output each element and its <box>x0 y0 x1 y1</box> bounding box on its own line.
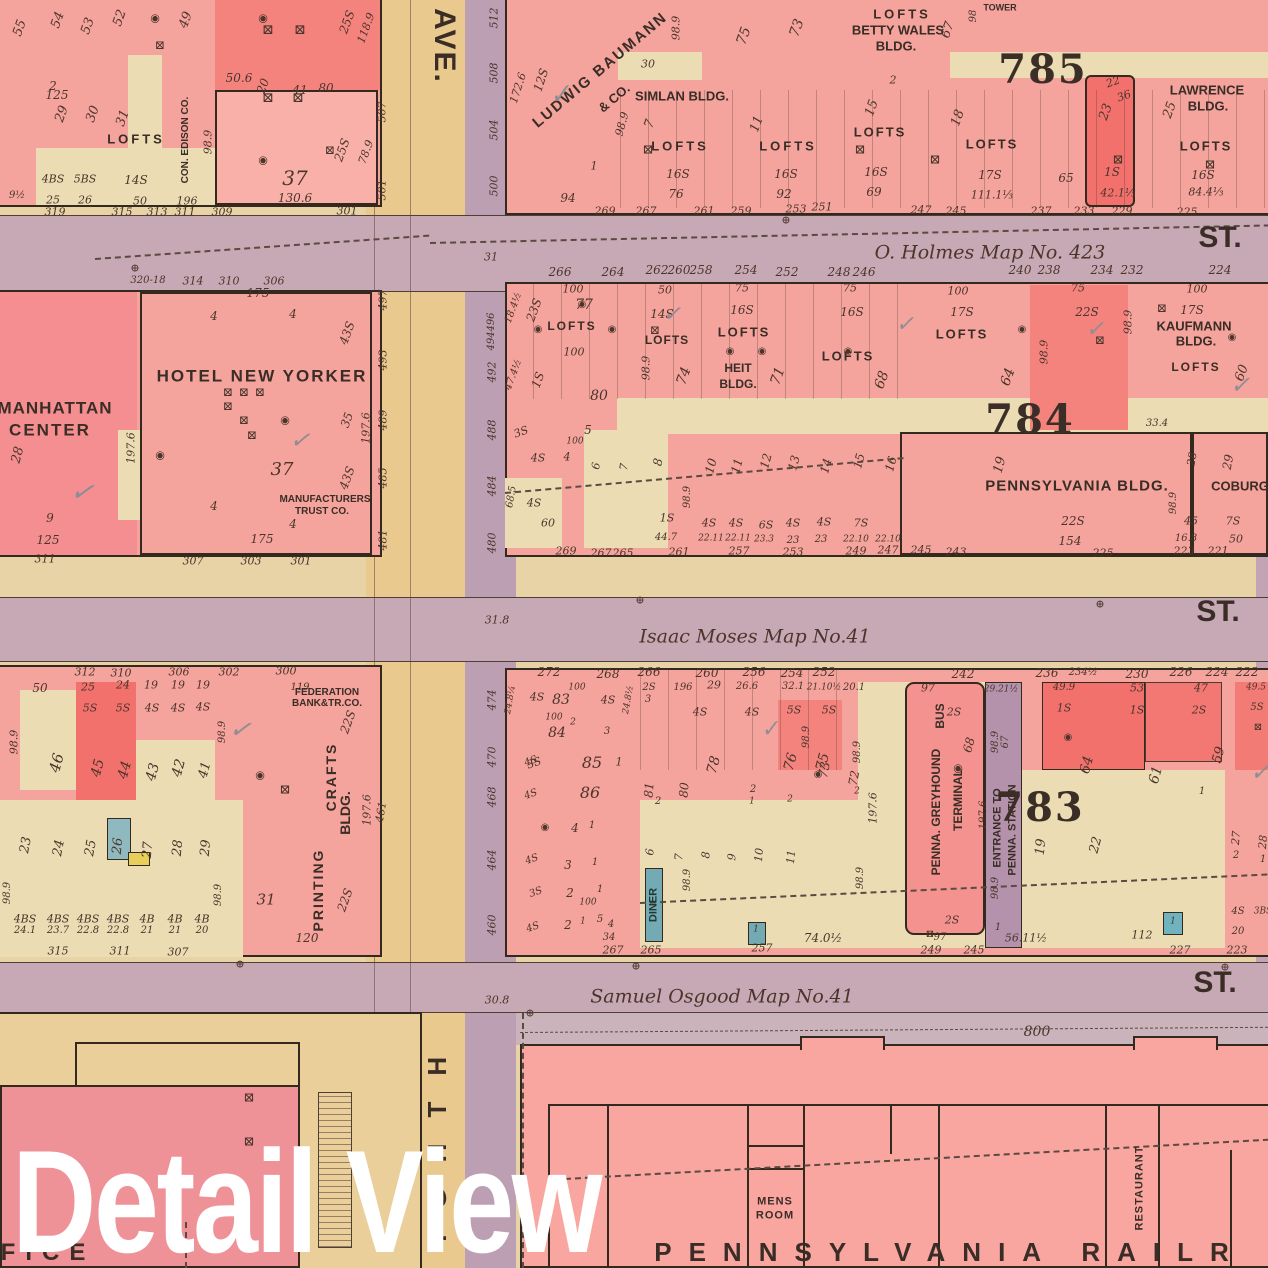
block_federation_printing-label: 4B <box>194 914 209 925</box>
survey-cross-icon: ⊕ <box>635 595 644 606</box>
block_785-label: 98 <box>969 10 979 23</box>
block_785-label: 247 <box>911 205 932 216</box>
elevator-dot-icon: ◉ <box>1228 333 1237 343</box>
block_783-label: 4S <box>1231 907 1244 917</box>
block_783-label: 3 <box>564 859 572 871</box>
greyhound-label-terminal: TERMINAL <box>952 769 964 831</box>
block_784-label: 154 <box>1059 535 1082 547</box>
block_783-label: 5S <box>822 705 837 716</box>
federation-bank-label-1: FEDERATION <box>295 688 359 698</box>
street1-width: 31 <box>484 252 498 263</box>
block_nw-label: 80 <box>318 82 333 94</box>
cross_street_2-label: 234½ <box>1069 668 1098 678</box>
check-mark: ✓ <box>227 716 252 745</box>
block_784-label: 7S <box>854 518 869 529</box>
block_783-label: 1 <box>1170 918 1176 927</box>
hatch-icon: ⊠ <box>155 39 165 51</box>
manufacturers-trust-label-2: TRUST CO. <box>295 507 349 517</box>
block_785-label: 65 <box>1058 172 1073 184</box>
block_federation_printing-label: 4S <box>171 703 186 714</box>
block_785-label: 245 <box>946 206 967 217</box>
penn-station-inner-line <box>607 1104 609 1268</box>
block_nw-label: 319 <box>45 207 66 218</box>
block_785-label: 76 <box>668 188 683 200</box>
block_784-label: 80 <box>590 389 608 403</box>
hotel-new-yorker-label: HOTEL NEW YORKER <box>157 368 368 385</box>
block_783-label: 5S <box>787 705 802 716</box>
elevator-dot-icon: ◉ <box>953 763 963 774</box>
diner-label: DINER <box>649 888 660 922</box>
cross_street_2-label: 266 <box>638 666 661 678</box>
check-mark: ✓ <box>1230 373 1250 397</box>
block_federation_printing-label: 21 <box>169 926 182 936</box>
hatch-icon: ⊠ <box>247 429 257 441</box>
block_784-label: 98.9 <box>1123 310 1134 335</box>
block_784-label: 245 <box>911 545 932 556</box>
heit-bldg-label-2: BLDG. <box>719 378 756 390</box>
block_783-label: 4S <box>601 695 616 706</box>
street1-name: O. Holmes Map No. 423 <box>875 244 1106 263</box>
block_783-label: 20.1 <box>843 683 865 693</box>
con-edison-label: CON. EDISON CO. <box>181 97 191 184</box>
block_manhattan_center_hotel-label: 175 <box>251 533 274 545</box>
block_nw-label: 315 <box>112 207 133 218</box>
penn-railroad-label: PENNSYLVANIA RAILR <box>654 1239 1246 1265</box>
block_federation_printing-label: 197.6 <box>362 794 373 826</box>
avenue-label: 480 <box>487 533 498 554</box>
entrance-label-2: PENNA. STATION <box>1008 784 1019 875</box>
block_783-label: 100 <box>579 899 596 908</box>
block_federation_printing-label: 306 <box>169 667 190 678</box>
survey-cross-icon: ⊕ <box>235 959 244 970</box>
block_783-label: 3BS <box>1254 908 1268 917</box>
avenue-label: 468 <box>487 787 498 808</box>
cross_street_2-label: 260 <box>696 667 719 679</box>
cross_street_1-label: 232 <box>1121 264 1144 276</box>
survey-cross-icon: ⊕ <box>631 961 640 972</box>
cross_street_2-label: 272 <box>538 666 561 678</box>
block_federation_printing-label: 29 <box>199 839 213 857</box>
block_784-label: 5 <box>584 424 592 436</box>
block_federation_printing-label: 20 <box>196 926 209 936</box>
block_784-label: 98.9 <box>1039 340 1050 365</box>
block_785-label: 16S <box>666 168 690 180</box>
block_784-label: 98.9 <box>641 356 652 381</box>
block_783-label: 97 <box>921 683 935 694</box>
check-mark: ✓ <box>759 718 780 742</box>
block_783-label: 100 <box>545 714 562 723</box>
block_784-label: 100 <box>563 284 584 295</box>
hatch-icon: ⊠ <box>643 144 654 157</box>
block_785-label: LOFTS <box>854 126 907 139</box>
elevator-dot-icon: ◉ <box>844 347 853 357</box>
block_785-label: 251 <box>812 202 833 213</box>
block_manhattan_center_hotel-label: 311 <box>35 554 56 565</box>
mens-room-label-2: ROOM <box>756 1211 794 1222</box>
block_783-label: 5 <box>597 915 603 925</box>
block_783-label: 2 <box>854 788 860 797</box>
pennsylvania-bldg-label: PENNSYLVANIA BLDG. <box>985 479 1169 494</box>
block_784-label: 221 <box>1208 546 1229 557</box>
check-mark: ✓ <box>289 427 311 453</box>
block_783-label: 81 <box>642 782 655 798</box>
entrance-label-1: ENTRANCE TO <box>993 788 1004 867</box>
block_783-label: 2 <box>1233 851 1239 861</box>
block_784-label: 7S <box>1226 516 1241 527</box>
cross_street_1-label: 224 <box>1209 264 1232 276</box>
block_federation_printing-label: 22.8 <box>77 926 99 936</box>
block_manhattan_center_hotel-label: 125 <box>46 89 69 101</box>
block_nw-label: 130.6 <box>278 192 312 204</box>
block_783-label: 1 <box>995 923 1001 933</box>
block_nw-label: 301 <box>337 206 358 217</box>
block_penn_station-label: 800 <box>1024 1025 1051 1039</box>
block_manhattan_center_hotel-label: 310 <box>219 276 240 287</box>
elevator-dot-icon: ◉ <box>1018 325 1027 335</box>
block_783-label: 1 <box>753 926 759 935</box>
block_785-label: 111.1⅓ <box>971 190 1013 201</box>
cross_street_2-label: 222 <box>1236 666 1259 678</box>
block_783-label: 85 <box>582 755 602 771</box>
block_784-label: 4 <box>564 452 571 463</box>
block_nw-label: 311 <box>175 207 196 218</box>
block_783-label: 6 <box>644 848 656 856</box>
block_783-label: 11 <box>785 850 797 865</box>
block_784-label: 4S <box>729 518 744 529</box>
elevator-dot-icon: ◉ <box>280 415 290 426</box>
block_783-label: 22 <box>1088 835 1105 854</box>
block_nw-label: 313 <box>147 207 168 218</box>
block_784-label: 4S <box>527 498 542 509</box>
cross_street_1-label: 234 <box>1091 264 1114 276</box>
avenue-label: 493 <box>378 350 389 371</box>
block_783-label: 86 <box>580 785 600 801</box>
block_785-label: LOFTS <box>966 138 1019 151</box>
detail-view-overlay: Detail View <box>12 1118 600 1268</box>
block_785-label: 261 <box>694 206 715 217</box>
block_federation_printing-label: 5S <box>83 703 98 714</box>
block-784-courtyard <box>617 398 1268 434</box>
block_784-label: 4S <box>702 518 717 529</box>
elevator-dot-icon: ◉ <box>578 300 587 310</box>
block_784-label: 19 <box>992 455 1009 474</box>
block_785-label: 233 <box>1074 206 1095 217</box>
block_783-label: 20 <box>1232 927 1245 937</box>
block_783-label: 2 <box>566 887 574 899</box>
block_nw-label: 98.9 <box>203 130 214 155</box>
hatch-icon: ⊠ <box>1113 154 1124 167</box>
block-number-785: 785 <box>998 50 1088 90</box>
block_783-label: 1 <box>749 798 755 807</box>
block_manhattan_center_hotel-label: 125 <box>37 534 60 546</box>
block_785-label: 69 <box>866 186 881 198</box>
kaufmann-bldg-label-2: BLDG. <box>1176 335 1216 348</box>
block_785-label: 267 <box>636 206 657 217</box>
restaurant-label: RESTAURANT <box>1135 1146 1146 1231</box>
block-number-784: 784 <box>985 400 1075 440</box>
block_784-label: 75 <box>1071 283 1085 294</box>
block_784-label: 11 <box>729 457 745 475</box>
avenue-label: 460 <box>487 915 498 936</box>
block_783-label: 2S <box>1192 705 1207 716</box>
kaufmann-bldg-label-1: KAUFMANN <box>1156 320 1231 333</box>
block_783-label: 1 <box>616 757 623 768</box>
block_785-label: LOFTS <box>1180 140 1233 153</box>
block_784-label: 247 <box>878 545 899 556</box>
block_783-label: 100 <box>568 684 585 693</box>
avenue-label: 470 <box>487 747 498 768</box>
block_federation_printing-label: 19 <box>144 680 158 691</box>
hatch-icon: ⊠ <box>244 1092 255 1105</box>
block_nw-label: 26 <box>78 195 92 206</box>
hatch-icon: ⊠ <box>262 91 274 105</box>
block_783-label: 1 <box>580 918 586 927</box>
block_784-label: 249 <box>846 546 867 557</box>
avenue-label: 481 <box>378 530 389 551</box>
block_783-label: 3 <box>645 695 651 705</box>
block_784-label: LOFTS <box>936 328 989 341</box>
block_785-label: LOFTS <box>759 140 817 153</box>
block_784-label: 22.10 <box>843 536 869 545</box>
block_federation_printing-label: 302 <box>219 667 240 678</box>
block_783-label: 2 <box>750 785 756 795</box>
block_783-label: 32.1 <box>782 682 804 692</box>
block_manhattan_center_hotel-label: 4 <box>210 310 218 322</box>
atlas-map: Detail View AVE.EIGHTH507501512508504500… <box>0 0 1268 1268</box>
elevator-dot-icon: ◉ <box>726 347 735 357</box>
block_785-label: 269 <box>595 206 616 217</box>
block_783-label: 72 <box>847 769 861 786</box>
block_785-label: 1S <box>1104 166 1120 178</box>
block_784-label: 13 <box>786 454 802 472</box>
block_785-label: 30 <box>641 59 655 70</box>
manufacturers-trust-label-1: MANUFACTURERS <box>279 495 370 505</box>
cross_street_2-label: 252 <box>813 666 836 678</box>
block_federation_printing-label: 23.7 <box>47 926 69 936</box>
block_784-label: 16 <box>883 455 899 473</box>
survey-cross-icon: ⊕ <box>130 263 139 274</box>
block_784-label: 17S <box>1180 304 1204 316</box>
block_783-label: 1 <box>592 858 598 868</box>
block_785-label: 16S <box>774 168 798 180</box>
cross_street_1-label: 264 <box>602 266 625 278</box>
elevator-dot-icon: ◉ <box>608 325 617 335</box>
block_784-label: 50 <box>1229 534 1243 545</box>
block_784-label: 100 <box>564 347 585 358</box>
block_783-label: 1 <box>589 821 595 831</box>
betty-wales-label-3: BLDG. <box>876 40 916 53</box>
block_783-label: 245 <box>964 945 985 956</box>
avenue-label: 504 <box>489 120 500 141</box>
block_federation_printing-label: 31 <box>256 893 275 908</box>
block_784-label: LOFTS <box>1171 361 1220 373</box>
block_784-label: 50 <box>658 285 672 296</box>
elevator-dot-icon: ◉ <box>814 770 823 780</box>
penn-station-step <box>1133 1036 1218 1050</box>
block_784-label: 14 <box>818 457 834 475</box>
block_783-label: 84 <box>548 726 566 740</box>
block_783-label: 26.6 <box>736 682 758 692</box>
block_783-label: 4S <box>530 692 545 703</box>
elevator-dot-icon: ◉ <box>258 13 268 24</box>
betty-wales-label-2: BETTY WALES <box>852 24 944 37</box>
block_nw-label: 25 <box>46 195 60 206</box>
lawrence-bldg-label-1: LAWRENCE <box>1170 84 1244 97</box>
cross_street_2-label: 242 <box>952 668 975 680</box>
avenue-label: 512 <box>489 8 500 29</box>
block_783-label: 3 <box>604 727 610 737</box>
block_federation_printing-label: 19 <box>196 680 210 691</box>
elevator-dot-icon: ◉ <box>258 155 268 166</box>
block_784-label: 17S <box>950 306 974 318</box>
block_785-label: 225 <box>1177 207 1198 218</box>
hatch-icon: ⊠ <box>255 386 265 398</box>
hatch-icon: ⊠ <box>930 154 941 167</box>
block_783-label: 1S <box>1130 705 1145 716</box>
block_783-label: 2 <box>570 719 576 728</box>
cross_street_1-label: 262 <box>646 264 669 276</box>
block_783-label: 112 <box>1132 930 1153 941</box>
avenue-label: 489 <box>378 410 389 431</box>
block_785-label: 42.1⅓ <box>1100 188 1135 199</box>
block_784-label: 10 <box>703 457 719 475</box>
elevator-dot-icon: ◉ <box>534 325 543 335</box>
block_783-label: 98.9 <box>802 726 812 748</box>
block_785-label: 229 <box>1112 206 1133 217</box>
block_784-label: 16S <box>730 304 754 316</box>
block_784-label: 261 <box>669 547 690 558</box>
block_783-label: 2 <box>655 797 661 807</box>
lawrence-bldg-label-2: BLDG. <box>1188 100 1228 113</box>
block_784-label: 6S <box>759 520 774 531</box>
block_federation_printing-label: 315 <box>48 946 69 957</box>
printing-crafts-label-2: CRAFTS <box>324 743 338 812</box>
block_nw-label: 14S <box>124 174 148 186</box>
hatch-icon: ⊠ <box>650 324 660 336</box>
block_federation_printing-label: 21 <box>141 926 154 936</box>
hatch-icon: ⊠ <box>239 414 249 426</box>
block_783-label: 97 <box>934 933 947 943</box>
block-784-lot-lines <box>505 284 905 399</box>
cross_street_1-label: 240 <box>1009 264 1032 276</box>
avenue-label: AVE. <box>429 8 459 84</box>
block_783-label: 2S <box>947 707 962 718</box>
block_federation_printing-label: 24 <box>116 680 130 691</box>
block_784-label: 16S <box>840 306 864 318</box>
block_federation_printing-label: 4B <box>139 914 154 925</box>
block_784-label: 33.4 <box>1146 419 1168 429</box>
block_federation_printing-label: 26 <box>111 837 125 855</box>
block_federation_printing-label: 50 <box>32 682 47 694</box>
block_783-label: 47 <box>1194 683 1208 694</box>
street2-name: Isaac Moses Map No.41 <box>639 628 870 647</box>
block_783-label: 98.9 <box>853 741 863 763</box>
lofts-label: LOFTS <box>107 133 165 146</box>
cross_street_1-label: 266 <box>549 266 572 278</box>
mens-room-label-1: MENS <box>757 1197 793 1208</box>
block_federation_printing-label: 312 <box>75 667 96 678</box>
check-mark: ✓ <box>1086 319 1104 341</box>
avenue-label: 492 <box>487 362 498 383</box>
block_nw-label: 5BS <box>74 174 97 185</box>
survey-cross-icon: ⊕ <box>1095 599 1104 610</box>
block_784-label: 75 <box>843 283 857 294</box>
hatch-icon: ⊠ <box>1254 723 1262 733</box>
block_783-label: 9 <box>726 853 738 861</box>
block_784-label: 253 <box>783 547 804 558</box>
block_federation_printing-label: 4B <box>167 914 182 925</box>
block_783-label: 197.6 <box>868 792 879 824</box>
block_federation_printing-label: 4BS <box>47 914 70 925</box>
elevator-dot-icon: ◉ <box>155 450 165 461</box>
block_783-label: 197.6 <box>979 801 989 830</box>
street1-st: ST. <box>1198 223 1241 253</box>
cross_street_2-label: 254 <box>781 667 804 679</box>
avenue-label: 500 <box>489 176 500 197</box>
block_783-label: 10 <box>753 848 765 863</box>
block_783-label: 29.21½ <box>984 686 1019 695</box>
block_783-label: 67 <box>1001 736 1011 749</box>
elevator-dot-icon: ◉ <box>255 770 265 781</box>
block_federation_printing-label: 4S <box>196 702 211 713</box>
block_nw-label: 309 <box>212 207 233 218</box>
block_784-label: 28 <box>1185 451 1198 467</box>
simlan-bldg-label: SIMLAN BLDG. <box>635 90 729 103</box>
block_784-label: 22.11 <box>698 535 724 544</box>
block_783-label: 1 <box>1260 855 1266 865</box>
printing-crafts-label-1: PRINTING <box>311 849 325 932</box>
block_783-label: 98.9 <box>683 869 693 891</box>
hatch-icon: ⊠ <box>292 91 304 105</box>
avenue-label: 494 <box>487 331 497 350</box>
block_nw-label: 50 <box>133 196 147 207</box>
block_783-label: 267 <box>603 945 624 956</box>
block_783-label: 1S <box>1057 703 1072 714</box>
block_federation_printing-label: 98.9 <box>214 884 224 906</box>
avenue-label: 464 <box>487 850 498 871</box>
greyhound-label-main: PENNA. GREYHOUND <box>930 749 942 876</box>
hatch-icon: ⊠ <box>223 400 233 412</box>
block_783-label: 56.11½ <box>1005 933 1047 944</box>
block_federation_printing-label: 4BS <box>77 914 100 925</box>
block_783-label: 34 <box>603 933 616 943</box>
block_784-label: 4S <box>786 518 801 529</box>
block_783-label: 5S <box>1250 703 1263 713</box>
hatch-icon: ⊠ <box>239 386 249 398</box>
block_federation_printing-label: 24 <box>51 839 67 858</box>
block_784-label: 23 <box>787 536 800 546</box>
cross_street_1-label: 246 <box>853 266 876 278</box>
manhattan-center-label-2: CENTER <box>9 422 91 439</box>
block_federation_printing-label: 300 <box>276 666 297 677</box>
block_784-label: 16.8 <box>1175 534 1197 544</box>
avenue-label: 474 <box>487 690 498 711</box>
block_784-label: 223 <box>1174 546 1195 557</box>
street2-st: ST. <box>1196 597 1239 627</box>
block_784-label: 257 <box>729 546 750 557</box>
block_784-label: 60 <box>541 518 555 529</box>
check-mark: ✓ <box>68 476 96 508</box>
block_manhattan_center_hotel-label: 4 <box>289 518 297 530</box>
check-mark: ✓ <box>1250 760 1268 784</box>
block_785-label: 98.9 <box>671 16 682 41</box>
hatch-icon: ⊠ <box>325 144 335 156</box>
block_785-label: LOFTS <box>651 140 709 153</box>
block_nw-label: 37 <box>282 168 307 188</box>
block_783-label: 4S <box>745 707 760 718</box>
block_784-label: 12 <box>758 452 774 470</box>
block_783-label: 223 <box>1227 945 1248 956</box>
